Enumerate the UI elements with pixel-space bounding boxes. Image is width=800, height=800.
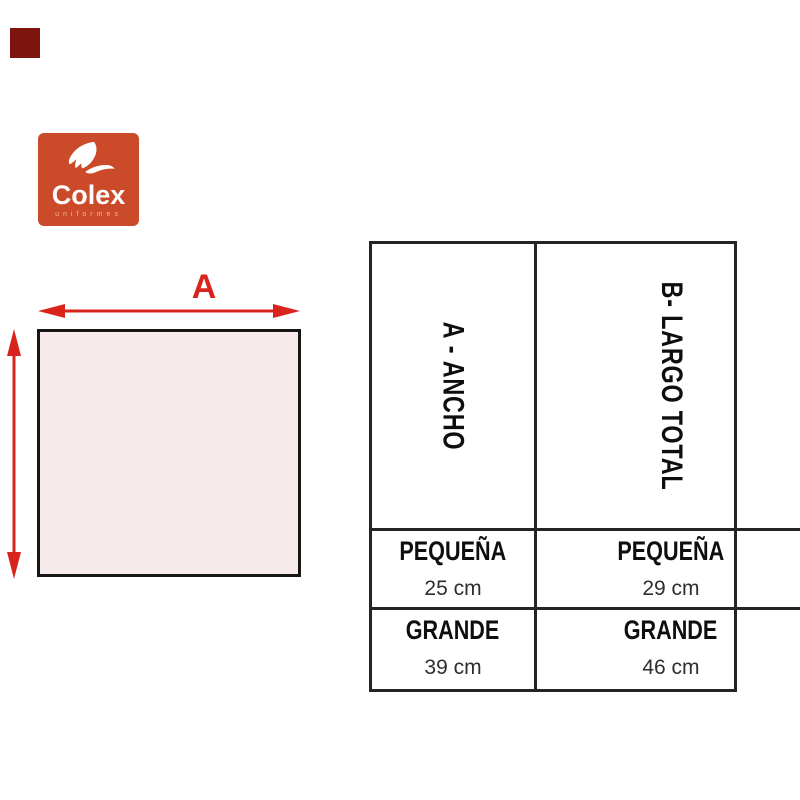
size-guide-image: Colex uniformes A A - ANCHO B- LARGO TOT…: [0, 0, 800, 800]
column-header-label: A - ANCHO: [436, 322, 470, 451]
product-shape: [37, 329, 301, 577]
size-value: 25 cm: [424, 577, 481, 601]
size-cell-ancho-grande: GRANDE 39 cm: [372, 610, 537, 689]
size-table: A - ANCHO B- LARGO TOTAL PEQUEÑA 25 cm P…: [369, 241, 737, 692]
size-name: PEQUEÑA: [618, 536, 725, 566]
size-name: PEQUEÑA: [400, 536, 507, 566]
wing-icon: [56, 140, 122, 180]
size-value: 39 cm: [424, 656, 481, 680]
header-cell-ancho: A - ANCHO: [372, 244, 537, 531]
color-swatch: [10, 28, 40, 58]
width-arrow: [38, 300, 300, 322]
size-name: GRANDE: [624, 615, 718, 645]
logo-tagline: uniformes: [55, 211, 122, 218]
size-cell-largo-pequena: PEQUEÑA 29 cm: [537, 531, 800, 610]
column-header-label: B- LARGO TOTAL: [654, 282, 688, 491]
size-cell-largo-grande: GRANDE 46 cm: [537, 610, 800, 689]
header-cell-largo: B- LARGO TOTAL: [537, 244, 800, 531]
height-arrow: [3, 329, 25, 579]
size-value: 46 cm: [642, 656, 699, 680]
size-name: GRANDE: [406, 615, 500, 645]
colex-logo: Colex uniformes: [38, 133, 139, 226]
size-value: 29 cm: [642, 577, 699, 601]
logo-brand-text: Colex: [52, 181, 126, 209]
size-cell-ancho-pequena: PEQUEÑA 25 cm: [372, 531, 537, 610]
